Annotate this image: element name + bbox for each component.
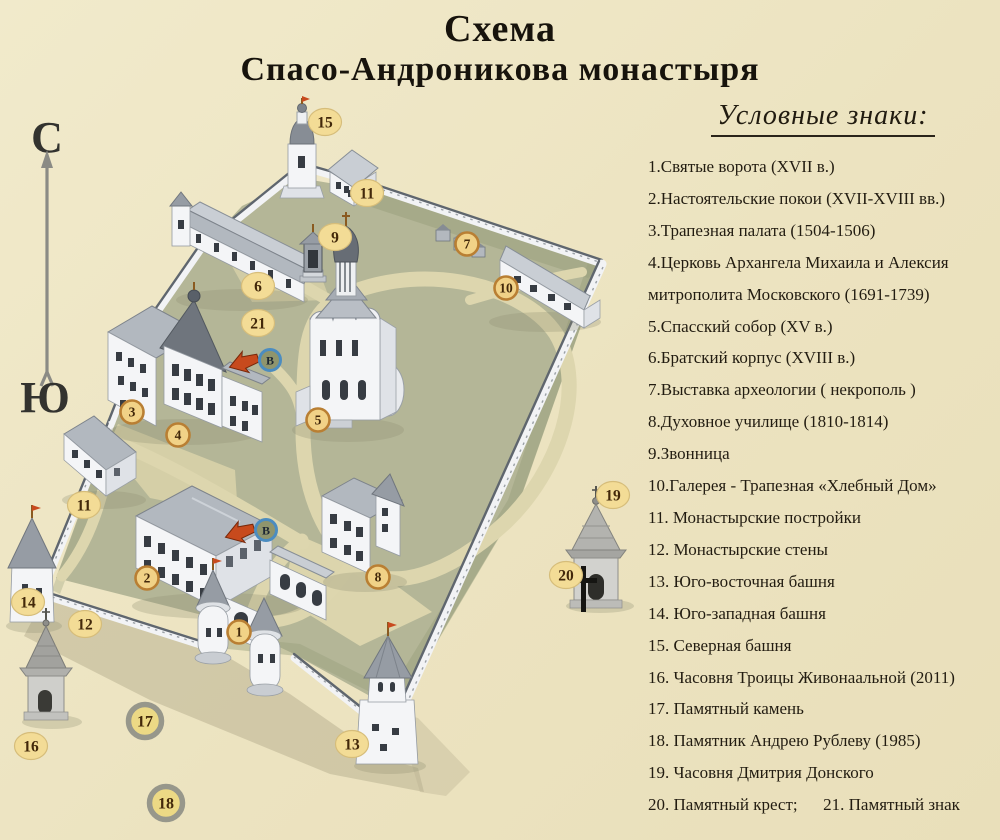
svg-text:11: 11: [360, 185, 375, 202]
legend-item: 10.Галерея - Трапезная «Хлебный Дом»: [648, 470, 998, 502]
map-marker-8: 8: [367, 566, 390, 589]
legend-items: 1.Святые ворота (XVII в.)2.Настоятельски…: [648, 151, 998, 821]
svg-text:8: 8: [375, 570, 382, 585]
legend-item: 9.Звонница: [648, 438, 998, 470]
legend-item: 2.Настоятельские покои (XVII-XVIII вв.): [648, 183, 998, 215]
legend-item: 5.Спасский собор (XV в.): [648, 311, 998, 343]
svg-text:В: В: [266, 353, 274, 367]
legend-item: 16. Часовня Троицы Живонаальной (2011): [648, 662, 998, 694]
map-marker-12: 12: [69, 611, 102, 638]
map-marker-1: 1: [228, 621, 251, 644]
map-marker-20: 20: [550, 562, 583, 589]
svg-text:14: 14: [20, 594, 36, 611]
legend: Условные знаки: 1.Святые ворота (XVII в.…: [648, 100, 998, 821]
map-marker-10: 10: [495, 277, 518, 300]
map-marker-6: 6: [242, 273, 275, 300]
legend-item: 7.Выставка археологии ( некрополь ): [648, 374, 998, 406]
svg-text:5: 5: [315, 413, 322, 428]
svg-text:4: 4: [175, 428, 182, 443]
map-marker-2: 2: [136, 567, 159, 590]
map-marker-11: 11: [351, 180, 384, 207]
compass: С Ю: [20, 113, 70, 422]
svg-text:17: 17: [137, 713, 153, 730]
svg-text:21: 21: [250, 315, 266, 332]
svg-text:12: 12: [77, 616, 93, 633]
compass-south-label: Ю: [20, 373, 70, 422]
legend-item: 4.Церковь Архангела Михаила и Алексия ми…: [648, 247, 998, 311]
legend-item: 17. Памятный камень: [648, 693, 998, 725]
page-title-line2: Спасо-Андроникова монастыря: [0, 50, 1000, 90]
legend-item: 14. Юго-западная башня: [648, 598, 998, 630]
legend-item: 15. Северная башня: [648, 630, 998, 662]
svg-text:19: 19: [605, 487, 621, 504]
map-marker-21: 21: [242, 310, 275, 337]
map-marker-7: 7: [456, 233, 479, 256]
svg-text:11: 11: [77, 497, 92, 514]
svg-text:2: 2: [144, 571, 151, 586]
svg-text:20: 20: [558, 567, 574, 584]
map-marker-15: 15: [309, 109, 342, 136]
legend-item: 3.Трапезная палата (1504-1506): [648, 215, 998, 247]
svg-text:В: В: [262, 523, 270, 537]
svg-text:9: 9: [331, 229, 339, 246]
legend-item: 6.Братский корпус (XVIII в.): [648, 342, 998, 374]
legend-item: 20. Памятный крест; 21. Памятный знак: [648, 789, 998, 821]
svg-text:1: 1: [236, 625, 243, 640]
map-marker-11: 11: [68, 492, 101, 519]
legend-title: Условные знаки:: [711, 100, 934, 137]
legend-item: 19. Часовня Дмитрия Донского: [648, 757, 998, 789]
svg-text:6: 6: [254, 278, 262, 295]
svg-text:16: 16: [23, 738, 39, 755]
page-title: Схема Спасо-Андроникова монастыря: [0, 8, 1000, 90]
map-marker-5: 5: [307, 409, 330, 432]
map-marker-16: 16: [15, 733, 48, 760]
svg-text:15: 15: [317, 114, 333, 131]
map-marker-18: 18: [150, 787, 183, 820]
page-title-line1: Схема: [0, 8, 1000, 50]
legend-item: 1.Святые ворота (XVII в.): [648, 151, 998, 183]
legend-item: 18. Памятник Андрею Рублеву (1985): [648, 725, 998, 757]
svg-text:10: 10: [499, 281, 513, 296]
map-marker-14: 14: [12, 589, 45, 616]
svg-text:13: 13: [344, 736, 360, 753]
legend-item: 12. Монастырские стены: [648, 534, 998, 566]
map-marker-17: 17: [129, 705, 162, 738]
svg-text:7: 7: [464, 237, 471, 252]
legend-title-wrap: Условные знаки:: [648, 100, 998, 137]
map-marker-19: 19: [597, 482, 630, 509]
svg-text:3: 3: [129, 405, 136, 420]
legend-item: 8.Духовное училище (1810-1814): [648, 406, 998, 438]
svg-text:18: 18: [158, 795, 174, 812]
monastery-map: 12345678910111112131415161718192021ВВ С …: [0, 95, 660, 840]
map-marker-3: 3: [121, 401, 144, 424]
map-marker-4: 4: [167, 424, 190, 447]
map-marker-9: 9: [319, 224, 352, 251]
map-marker-13: 13: [336, 731, 369, 758]
legend-item: 11. Монастырские постройки: [648, 502, 998, 534]
legend-item: 13. Юго-восточная башня: [648, 566, 998, 598]
monastery-map-scheme: { "title": { "line1": "Схема", "line2": …: [0, 0, 1000, 840]
